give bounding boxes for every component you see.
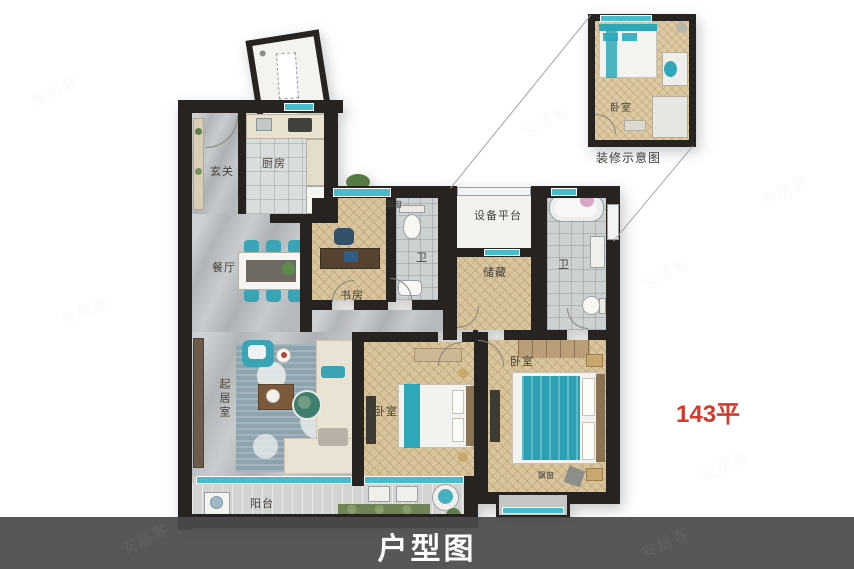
inset-pillow xyxy=(622,33,637,41)
wall-jog xyxy=(312,198,324,216)
desk-chair xyxy=(334,228,354,245)
floorplan: 玄关 厨房 餐厅 书房 飘窗 卫 设备平台 储藏 卫 卧室 卧室 起居室 阳台 … xyxy=(0,0,854,569)
pillow xyxy=(582,378,595,416)
room-label-balcony: 阳台 xyxy=(250,495,274,511)
wall-bedroom-mid-top xyxy=(462,332,474,342)
decor-plant xyxy=(195,168,202,175)
sofa-pillow xyxy=(321,366,345,378)
desk-laptop xyxy=(344,251,358,262)
pillow xyxy=(582,422,595,460)
toilet-tank xyxy=(399,205,425,213)
toilet-tank xyxy=(599,298,606,314)
living-balcony-door xyxy=(196,476,352,484)
shaft-dashed-outline xyxy=(276,52,299,99)
inset-window xyxy=(600,15,652,22)
wall-right-outer xyxy=(606,198,620,504)
floorplan-page: { "page_title": "户型图", "area_label": "14… xyxy=(0,0,854,569)
wall-corridor xyxy=(412,300,448,310)
decor-plant xyxy=(195,128,202,135)
kitchen-stove xyxy=(288,118,312,132)
plant-table xyxy=(292,390,322,420)
armchair-cushion xyxy=(248,345,266,359)
room-label-bedroom-master: 卧室 xyxy=(510,353,534,369)
study-bay-window xyxy=(333,188,391,197)
inset-room-label: 卧室 xyxy=(610,99,632,114)
inset-wardrobe xyxy=(652,96,688,138)
wall-top-left xyxy=(178,100,343,113)
room-label-bath1: 卫 xyxy=(416,249,428,265)
inset-chair xyxy=(664,61,677,77)
dining-chair xyxy=(266,240,281,252)
equipment-railing xyxy=(457,187,531,196)
kitchen-window xyxy=(284,103,314,111)
page-title: 户型图 xyxy=(0,524,854,568)
room-label-kitchen: 厨房 xyxy=(262,155,286,171)
table-plant xyxy=(282,262,295,275)
wall-bedrooms-top xyxy=(588,330,606,340)
nightstand-lamp xyxy=(458,452,468,462)
inset-bench xyxy=(624,120,646,131)
wall-bedrooms-top xyxy=(504,330,567,340)
room-label-bay-window: 飘窗 xyxy=(386,199,402,210)
wall-storage-bath2 xyxy=(531,186,547,340)
balcony-chair xyxy=(396,486,418,502)
sofa-blanket xyxy=(318,428,348,446)
room-label-bath2: 卫 xyxy=(558,256,570,272)
inset-lamp xyxy=(676,22,687,33)
storage-window xyxy=(484,249,520,256)
room-label-entrance: 玄关 xyxy=(210,163,234,179)
wall-equipment-left xyxy=(443,186,457,340)
wall-master-bottom xyxy=(568,492,620,504)
wall-living-bedroom xyxy=(352,332,364,480)
papasan-cushion xyxy=(438,489,453,504)
annex-dot xyxy=(259,50,266,57)
toilet-bowl xyxy=(403,214,421,239)
balcony-chair xyxy=(368,486,390,502)
tv-console xyxy=(193,338,204,468)
dining-chair xyxy=(266,290,281,302)
dining-chair xyxy=(244,290,259,302)
pillow xyxy=(452,390,464,414)
bedroom-balcony-window xyxy=(364,476,464,484)
pillow xyxy=(452,418,464,442)
headboard xyxy=(596,374,605,462)
inset-headboard xyxy=(599,24,657,31)
inset-bed-runner xyxy=(606,31,617,78)
bed-runner xyxy=(404,384,420,448)
wall-corridor xyxy=(312,300,332,310)
wall-dining-study xyxy=(300,214,312,332)
nightstand-lamp xyxy=(458,368,468,378)
kitchen-sink xyxy=(256,118,272,131)
area-label: 143平 xyxy=(676,394,740,429)
tv-console xyxy=(490,390,500,442)
wall-bedrooms-top xyxy=(443,330,457,340)
bath2-window xyxy=(551,188,577,196)
corridor-floor xyxy=(312,310,443,332)
room-label-living: 起居室 xyxy=(216,378,232,420)
washer-drum xyxy=(210,496,223,509)
wall-balcony-right xyxy=(464,476,478,516)
room-label-equipment: 设备平台 xyxy=(474,207,522,223)
wall-left-outer xyxy=(178,100,192,530)
room-label-dining: 餐厅 xyxy=(212,259,236,275)
dining-chair xyxy=(244,240,259,252)
headboard xyxy=(466,386,474,446)
bay-window-glass xyxy=(502,507,564,514)
bay-window-box xyxy=(496,492,570,518)
wall-stub xyxy=(352,472,364,486)
bath-vanity xyxy=(590,236,605,268)
fruit xyxy=(281,352,287,358)
bed-duvet xyxy=(522,376,580,460)
wall-bedroom-mid-top xyxy=(352,332,438,342)
wall-entry-kitchen xyxy=(238,113,246,214)
nightstand xyxy=(586,354,603,367)
room-label-bedroom-mid: 卧室 xyxy=(374,403,398,419)
table-tray xyxy=(266,389,280,403)
room-label-storage: 储藏 xyxy=(483,264,507,280)
nightstand xyxy=(586,468,603,481)
inset-caption: 装修示意图 xyxy=(596,149,661,166)
room-label-bay-window-master: 飘窗 xyxy=(538,470,554,481)
room-label-study: 书房 xyxy=(340,287,364,303)
